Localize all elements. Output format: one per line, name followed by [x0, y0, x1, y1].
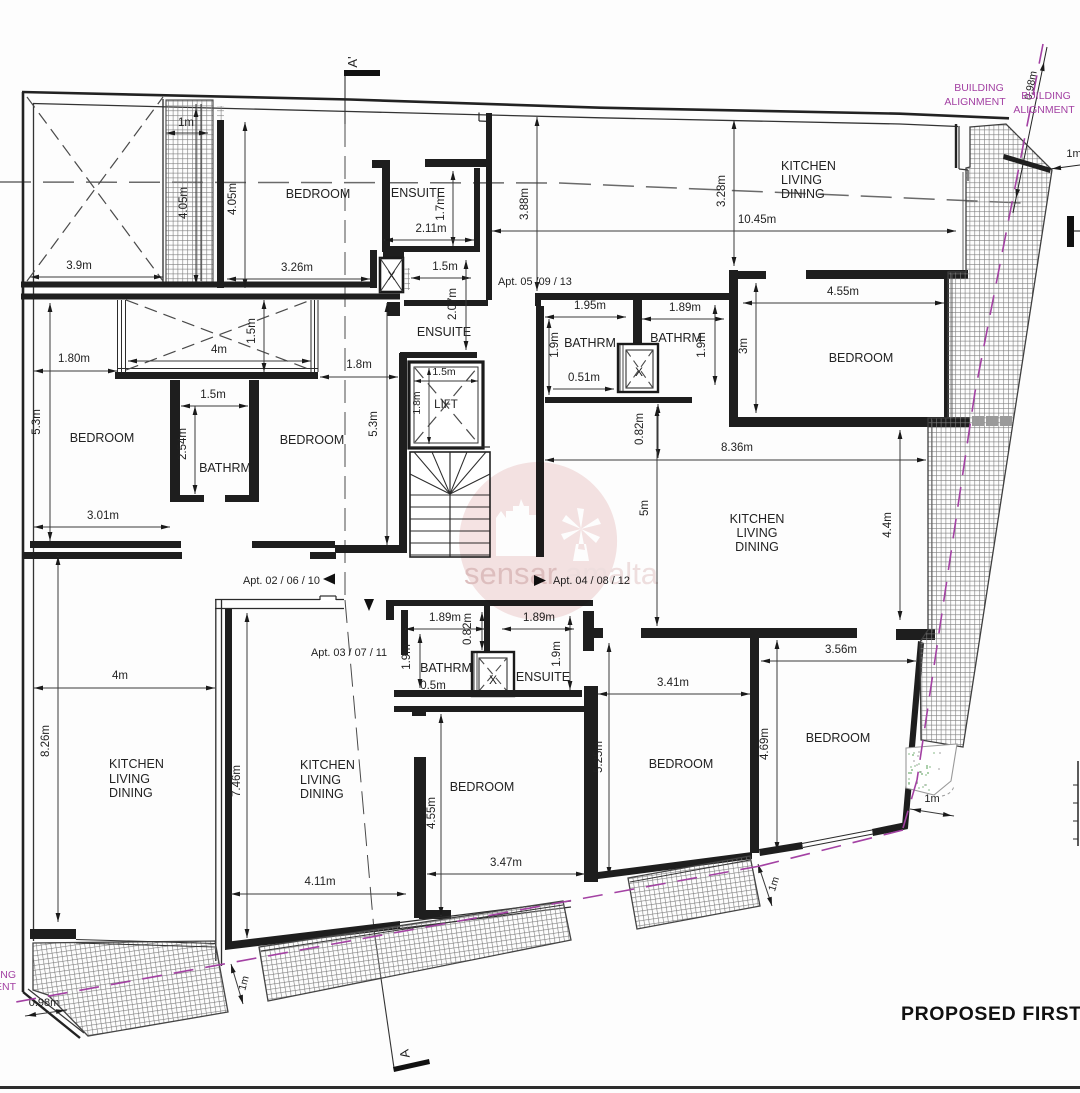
svg-text:3.56m: 3.56m [825, 644, 857, 656]
svg-text:3.88m: 3.88m [519, 188, 531, 220]
svg-text:0.82m: 0.82m [634, 413, 646, 445]
svg-text:1.8m: 1.8m [411, 391, 423, 415]
svg-text:BEDROOM: BEDROOM [286, 187, 351, 201]
svg-text:NG: NG [0, 969, 16, 981]
svg-text:BEDROOM: BEDROOM [70, 431, 135, 445]
svg-text:4.55m: 4.55m [827, 286, 859, 298]
svg-text:LIVING: LIVING [781, 173, 822, 187]
svg-text:3.28m: 3.28m [716, 175, 728, 207]
svg-text:8.26m: 8.26m [40, 725, 52, 757]
svg-text:BATHRM: BATHRM [420, 661, 472, 675]
svg-text:1.8m: 1.8m [346, 359, 372, 371]
svg-text:1.5m: 1.5m [200, 389, 226, 401]
svg-text:3m: 3m [738, 338, 750, 354]
svg-text:2.07m: 2.07m [447, 288, 459, 320]
svg-text:ALIGNMENT: ALIGNMENT [944, 96, 1006, 108]
svg-text:DINING: DINING [735, 540, 779, 554]
svg-text:3.26m: 3.26m [281, 262, 313, 274]
svg-text:4.55m: 4.55m [426, 797, 438, 829]
svg-text:BUILDING: BUILDING [1021, 90, 1071, 102]
svg-text:8.36m: 8.36m [721, 442, 753, 454]
svg-text:BEDROOM: BEDROOM [649, 757, 714, 771]
svg-text:BEDROOM: BEDROOM [450, 780, 515, 794]
svg-text:Apt. 03 / 07 / 11: Apt. 03 / 07 / 11 [311, 647, 387, 659]
svg-text:4.05m: 4.05m [178, 187, 190, 219]
svg-text:LIVING: LIVING [109, 772, 150, 786]
svg-text:4m: 4m [112, 670, 128, 682]
svg-text:amalta: amalta [565, 556, 659, 591]
svg-text:LIFT: LIFT [434, 399, 458, 411]
svg-text:KITCHEN: KITCHEN [109, 757, 164, 771]
svg-text:1.9m: 1.9m [696, 332, 708, 358]
svg-text:LIVING: LIVING [737, 526, 778, 540]
svg-text:0.82m: 0.82m [462, 613, 474, 645]
svg-text:LIVING: LIVING [300, 773, 341, 787]
svg-text:10.45m: 10.45m [738, 214, 776, 226]
svg-text:1.7m: 1.7m [435, 195, 447, 221]
svg-text:A': A' [345, 56, 360, 67]
svg-text:1.9m: 1.9m [401, 644, 413, 670]
svg-text:4.05m: 4.05m [227, 183, 239, 215]
svg-text:1.9m: 1.9m [549, 332, 561, 358]
svg-text:4.4m: 4.4m [882, 512, 894, 538]
svg-text:BEDROOM: BEDROOM [806, 731, 871, 745]
svg-text:KITCHEN: KITCHEN [730, 512, 785, 526]
svg-text:1m: 1m [178, 117, 194, 129]
svg-text:1m: 1m [1066, 148, 1080, 160]
svg-text:1.5m: 1.5m [432, 261, 458, 273]
svg-text:3.41m: 3.41m [657, 677, 689, 689]
svg-text:ENT: ENT [0, 981, 17, 993]
svg-text:DINING: DINING [781, 187, 825, 201]
svg-text:BATHRM: BATHRM [564, 336, 616, 350]
svg-text:2.11m: 2.11m [415, 223, 446, 235]
svg-text:Apt. 05 /09 / 13: Apt. 05 /09 / 13 [498, 276, 572, 288]
svg-text:1.9m: 1.9m [551, 641, 563, 667]
svg-text:X: X [635, 365, 643, 379]
svg-text:0.51m: 0.51m [568, 372, 600, 384]
svg-text:X: X [489, 673, 497, 687]
svg-text:PROPOSED FIRST: PROPOSED FIRST [901, 1003, 1080, 1025]
svg-text:2.54m: 2.54m [177, 428, 189, 460]
svg-text:DINING: DINING [109, 786, 153, 800]
svg-text:1.89m: 1.89m [669, 302, 701, 314]
svg-text:ALIGNMENT: ALIGNMENT [1013, 104, 1075, 116]
svg-text:BATHRM: BATHRM [199, 461, 251, 475]
svg-text:1.80m: 1.80m [58, 353, 90, 365]
svg-text:7.46m: 7.46m [231, 765, 243, 797]
svg-text:3.01m: 3.01m [87, 510, 119, 522]
svg-text:3.9m: 3.9m [66, 260, 92, 272]
svg-text:DINING: DINING [300, 787, 344, 801]
svg-text:1.95m: 1.95m [574, 300, 606, 312]
svg-text:4.69m: 4.69m [759, 728, 771, 760]
svg-text:X: X [387, 269, 395, 283]
svg-text:sensar: sensar [464, 556, 557, 591]
svg-text:1.89m: 1.89m [429, 612, 461, 624]
svg-text:KITCHEN: KITCHEN [300, 758, 355, 772]
svg-text:BUILDING: BUILDING [954, 82, 1004, 94]
svg-text:4.11m: 4.11m [304, 876, 335, 888]
svg-text:5m: 5m [639, 500, 651, 516]
svg-text:1.5m: 1.5m [246, 318, 258, 344]
svg-text:Apt. 02 / 06 / 10: Apt. 02 / 06 / 10 [243, 575, 320, 587]
svg-text:ENSUITE: ENSUITE [417, 325, 471, 339]
svg-text:KITCHEN: KITCHEN [781, 159, 836, 173]
svg-text:5.3m: 5.3m [31, 409, 43, 435]
svg-text:ENSUITE: ENSUITE [516, 670, 570, 684]
svg-text:4m: 4m [211, 344, 227, 356]
svg-text:BEDROOM: BEDROOM [829, 351, 894, 365]
svg-text:5.3m: 5.3m [368, 411, 380, 437]
svg-text:5.25m: 5.25m [593, 741, 605, 773]
svg-text:1.5m: 1.5m [432, 366, 456, 378]
svg-text:BEDROOM: BEDROOM [280, 433, 345, 447]
svg-text:3.47m: 3.47m [490, 857, 522, 869]
